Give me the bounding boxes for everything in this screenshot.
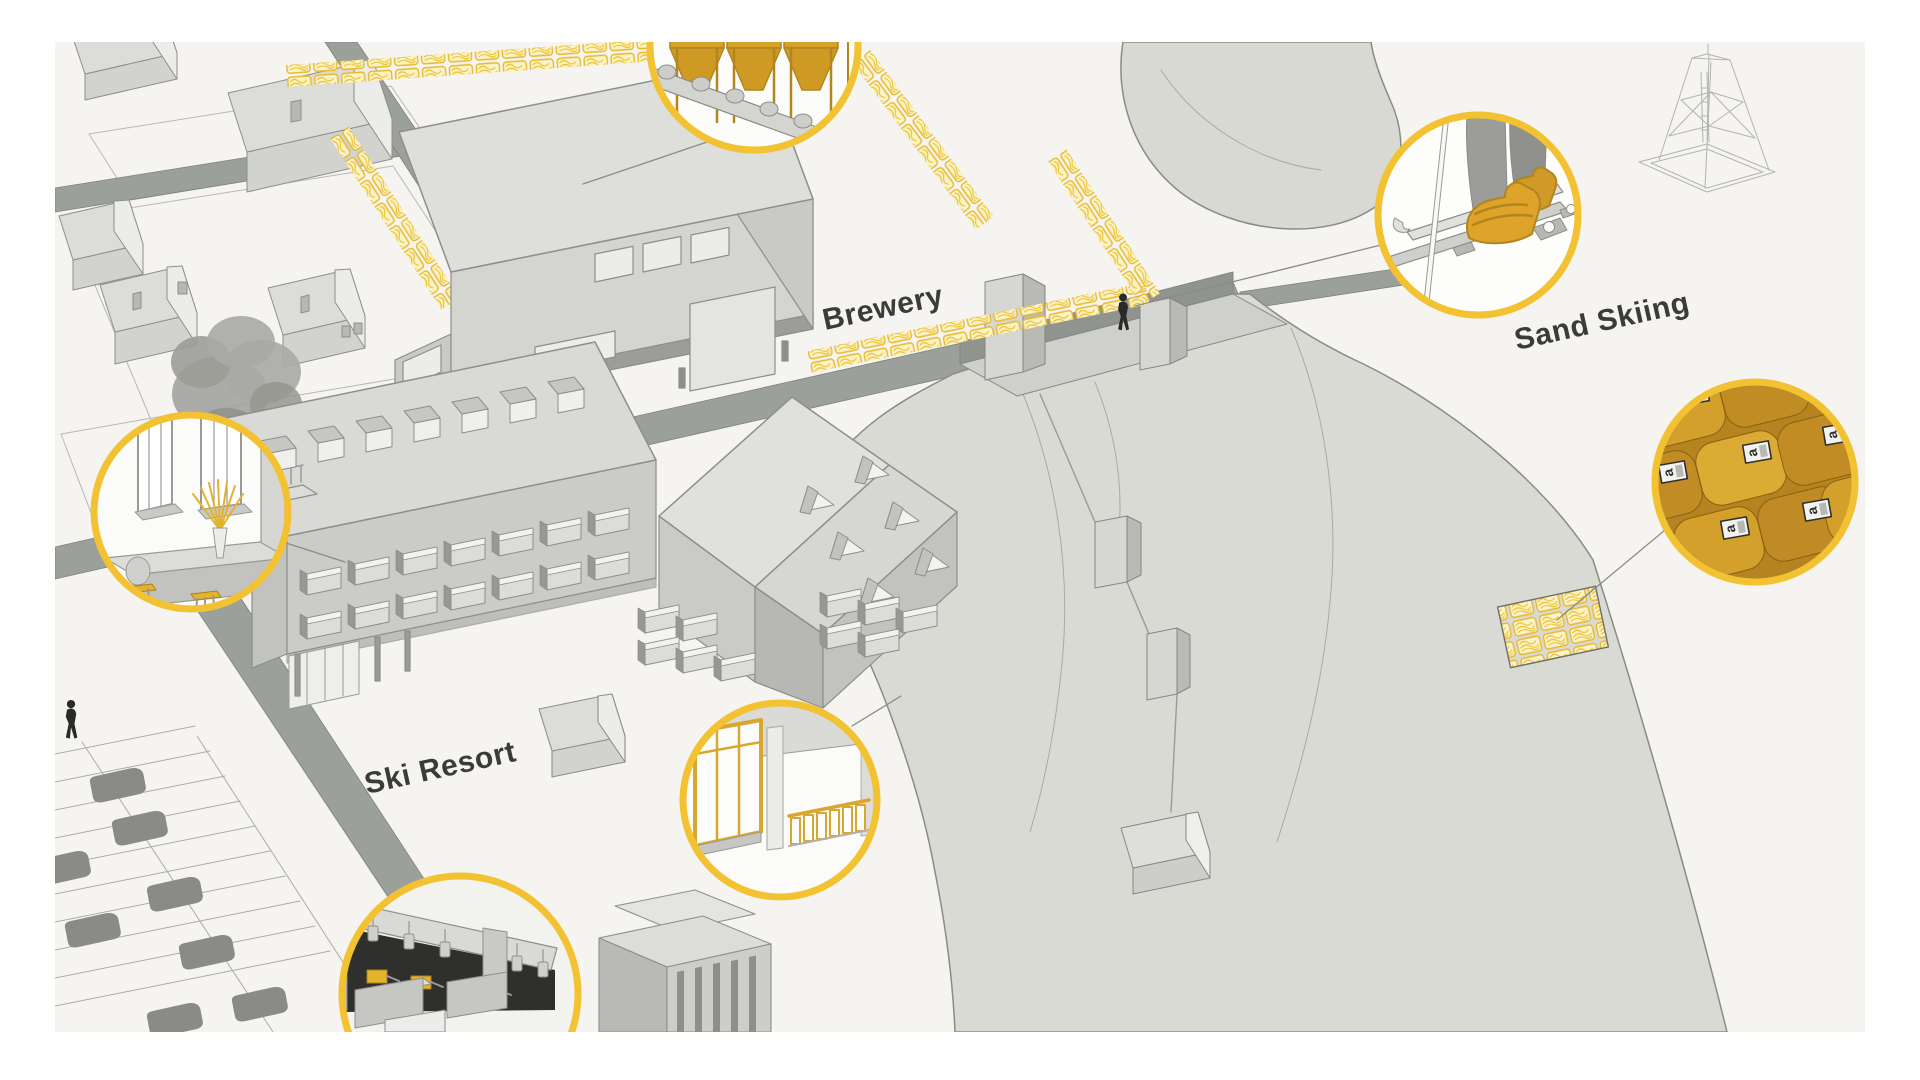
site-illustration: Brewery Ski Resort Sand Skiing [55, 42, 1865, 1032]
hut [539, 694, 625, 777]
illustration-frame: Brewery Ski Resort Sand Skiing [0, 0, 1920, 1080]
site-map-canvas: Brewery Ski Resort Sand Skiing [55, 42, 1865, 1032]
callout-terrace-windows [681, 702, 877, 897]
